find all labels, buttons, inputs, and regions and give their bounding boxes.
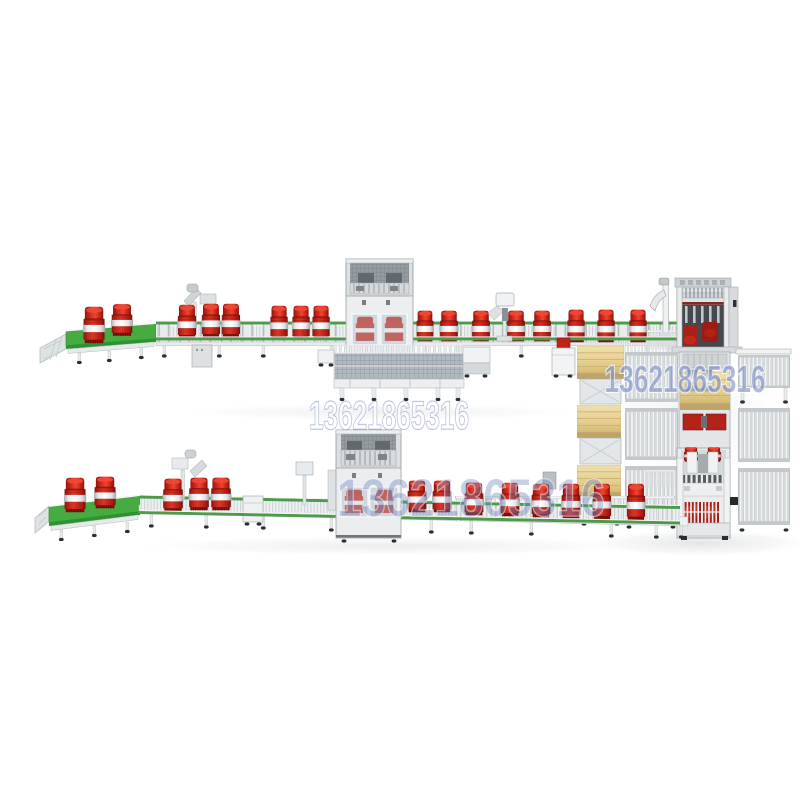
- svg-text:13621865316: 13621865316: [337, 469, 605, 528]
- svg-text:13621865316: 13621865316: [605, 359, 766, 401]
- svg-text:13621865316: 13621865316: [309, 394, 469, 438]
